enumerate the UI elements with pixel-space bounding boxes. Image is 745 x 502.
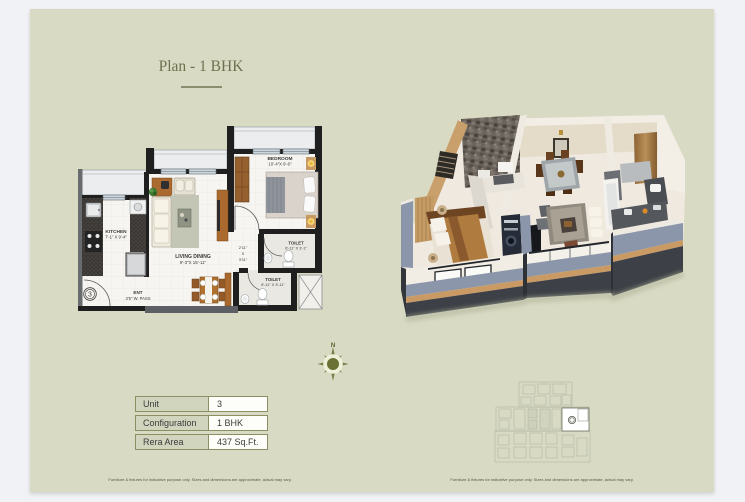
svg-text:3'11": 3'11": [239, 257, 248, 262]
svg-text:X: X: [242, 251, 245, 256]
svg-text:TOILET: TOILET: [288, 241, 304, 246]
svg-text:9'-3"X 15'-11": 9'-3"X 15'-11": [180, 260, 207, 265]
svg-text:3: 3: [88, 292, 92, 299]
svg-text:7'-1" X 9'-4": 7'-1" X 9'-4": [105, 235, 127, 240]
svg-text:N: N: [331, 343, 335, 349]
svg-text:2'11": 2'11": [239, 245, 248, 250]
svg-text:3'5" W. PASS: 3'5" W. PASS: [125, 296, 150, 301]
svg-text:10'-4"X 9'-6": 10'-4"X 9'-6": [269, 162, 292, 167]
svg-text:ENT: ENT: [133, 290, 142, 295]
svg-text:TOILET: TOILET: [265, 277, 281, 282]
svg-text:6'-11" X 3'-11": 6'-11" X 3'-11": [261, 283, 285, 287]
svg-text:6'-11" X 3'-1": 6'-11" X 3'-1": [285, 247, 307, 251]
